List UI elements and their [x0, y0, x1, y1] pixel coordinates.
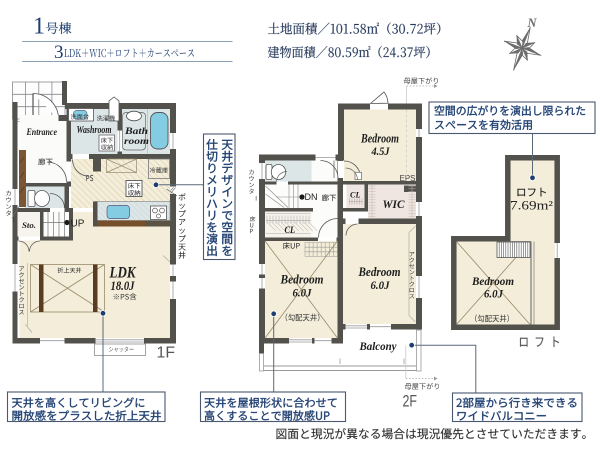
svg-text:Bedroom: Bedroom: [280, 273, 324, 287]
svg-text:WIC: WIC: [383, 199, 405, 211]
svg-text:Sto.: Sto.: [22, 220, 36, 230]
svg-text:1: 1: [33, 14, 45, 40]
svg-text:CL: CL: [350, 190, 361, 200]
svg-text:Bedroom: Bedroom: [471, 274, 514, 288]
svg-text:DN: DN: [305, 192, 318, 202]
svg-text:Entrance: Entrance: [26, 128, 58, 138]
svg-text:UP: UP: [71, 219, 85, 230]
svg-text:EPS: EPS: [400, 174, 416, 183]
svg-text:6.0J: 6.0J: [293, 286, 313, 300]
svg-text:3: 3: [54, 42, 64, 63]
svg-text:Bath: Bath: [124, 127, 148, 137]
svg-text:Washroom: Washroom: [77, 125, 112, 136]
svg-text:4.5J: 4.5J: [371, 144, 391, 158]
svg-text:Bedroom: Bedroom: [358, 265, 401, 279]
svg-text:1F: 1F: [157, 345, 176, 362]
svg-text:7.69m²: 7.69m²: [510, 199, 553, 213]
svg-text:N: N: [527, 16, 538, 30]
svg-text:6.0J: 6.0J: [484, 289, 504, 301]
svg-text:room: room: [124, 137, 149, 147]
svg-text:6.0J: 6.0J: [371, 278, 391, 292]
svg-text:CL: CL: [285, 225, 296, 235]
svg-text:18.0J: 18.0J: [111, 278, 135, 293]
svg-text:Balcony: Balcony: [359, 341, 398, 353]
svg-text:2F: 2F: [403, 393, 418, 411]
